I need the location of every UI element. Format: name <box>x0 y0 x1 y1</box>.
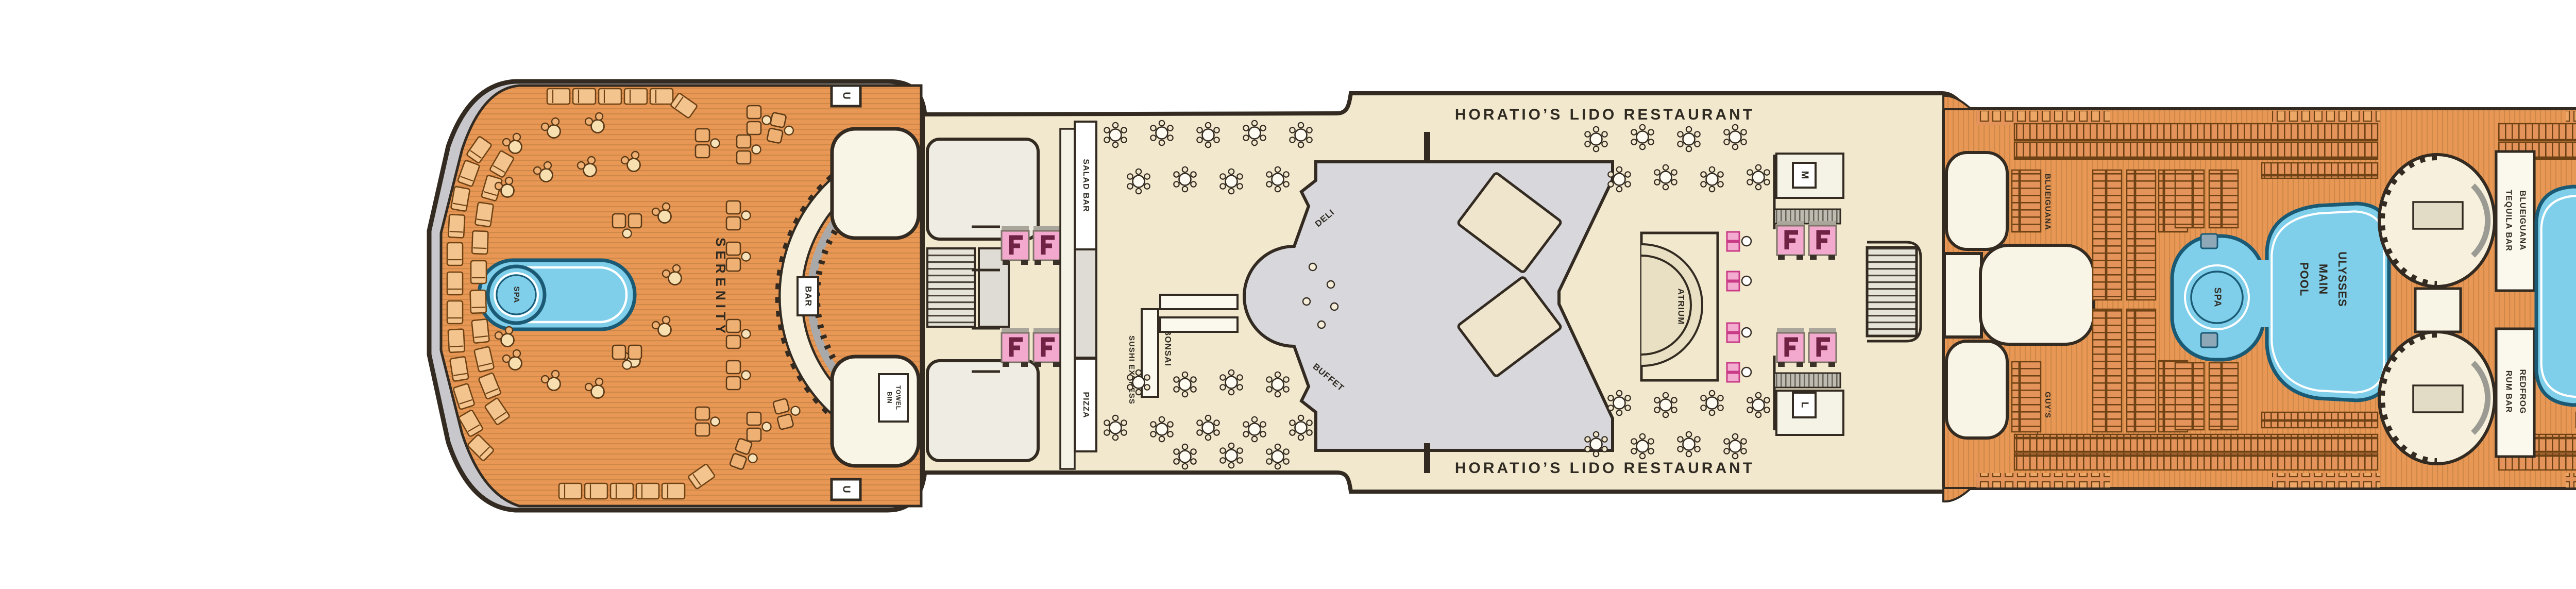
svg-text:U: U <box>841 485 852 493</box>
svg-text:REDFROG: REDFROG <box>2518 369 2527 414</box>
svg-text:POOL: POOL <box>2298 262 2311 296</box>
svg-text:M: M <box>1799 171 1810 180</box>
svg-text:U: U <box>841 92 852 99</box>
svg-text:BLUEIGUANA: BLUEIGUANA <box>2043 174 2052 230</box>
svg-text:SALAD BAR: SALAD BAR <box>1081 159 1090 212</box>
svg-text:SPA: SPA <box>512 287 521 304</box>
svg-text:BIN: BIN <box>886 392 893 404</box>
svg-text:GUY’S: GUY’S <box>2043 392 2052 418</box>
svg-text:BONSAI: BONSAI <box>1163 329 1173 366</box>
svg-text:L: L <box>1799 402 1810 409</box>
svg-text:HORATIO’S LIDO RESTAURANT: HORATIO’S LIDO RESTAURANT <box>1455 460 1755 477</box>
svg-text:BLUEIGUANA: BLUEIGUANA <box>2518 191 2527 251</box>
svg-text:MAIN: MAIN <box>2317 264 2330 295</box>
svg-text:ULYSSES: ULYSSES <box>2336 251 2349 307</box>
svg-text:TEQUILA BAR: TEQUILA BAR <box>2504 190 2513 251</box>
svg-text:SPA: SPA <box>2212 288 2223 308</box>
svg-text:RUM BAR: RUM BAR <box>2504 371 2513 413</box>
svg-text:TOWEL: TOWEL <box>894 385 902 410</box>
svg-text:PIZZA: PIZZA <box>1081 392 1090 418</box>
svg-text:SUSHI EXPRESS: SUSHI EXPRESS <box>1127 335 1136 405</box>
svg-text:ATRIUM: ATRIUM <box>1676 289 1686 325</box>
svg-text:HORATIO’S LIDO RESTAURANT: HORATIO’S LIDO RESTAURANT <box>1455 106 1755 123</box>
svg-text:BAR: BAR <box>804 286 814 307</box>
